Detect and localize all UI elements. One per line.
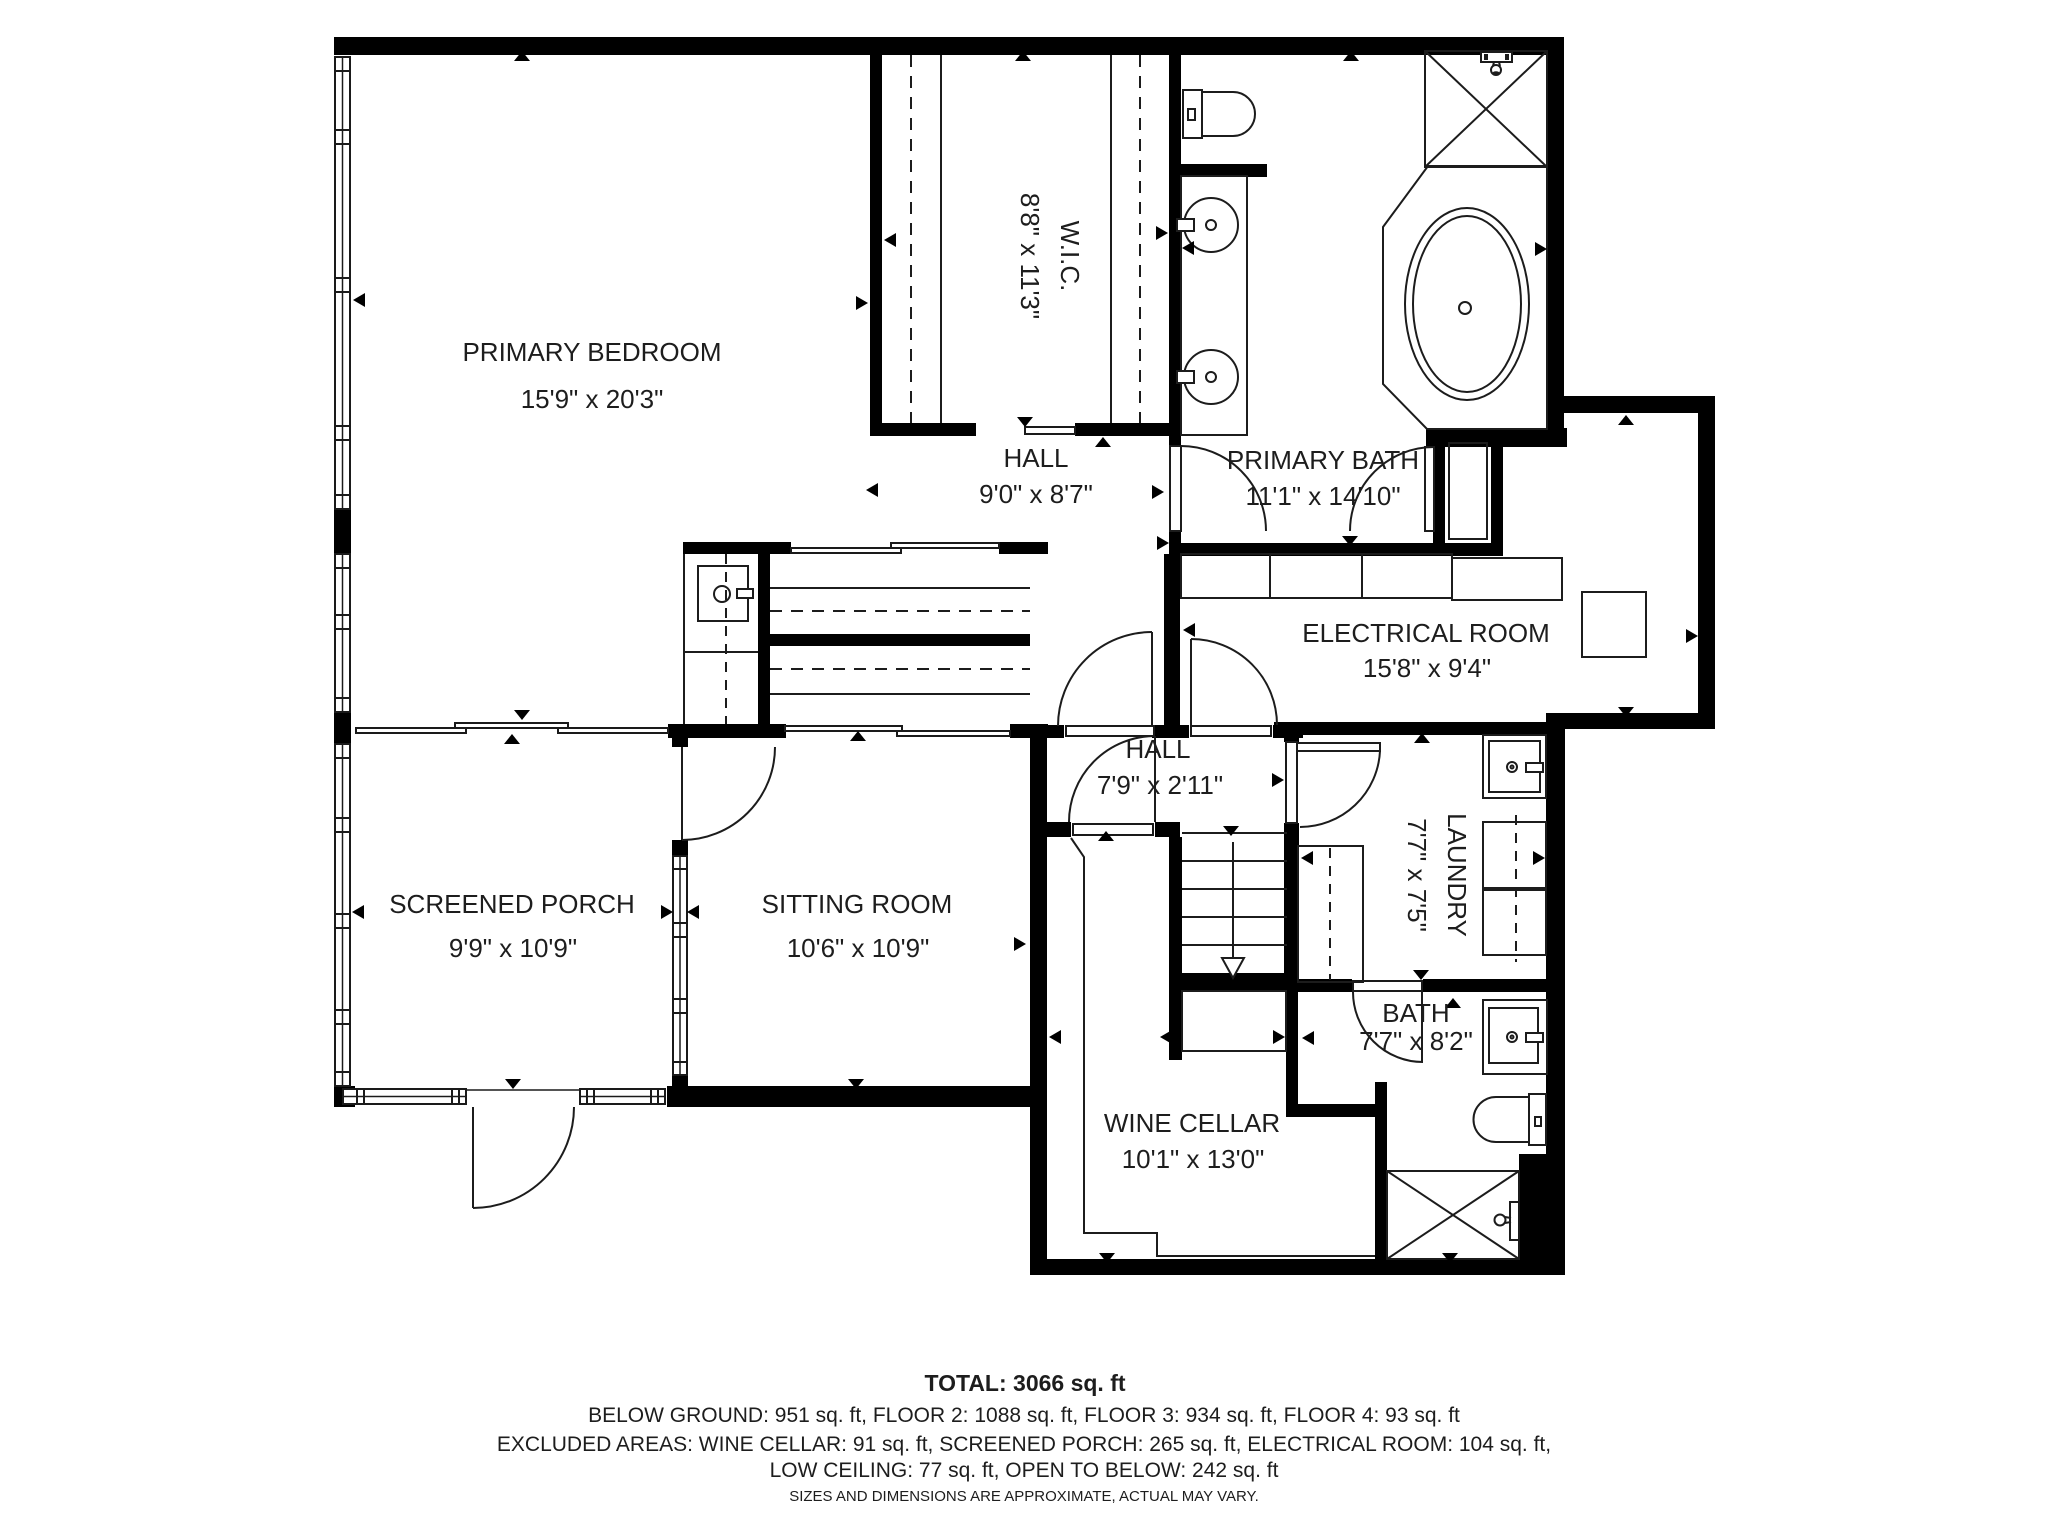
svg-text:SIZES AND DIMENSIONS ARE APPRO: SIZES AND DIMENSIONS ARE APPROXIMATE, AC… [789,1488,1259,1505]
svg-text:7'9" x 2'11": 7'9" x 2'11" [1097,770,1223,800]
svg-text:WINE CELLAR: WINE CELLAR [1104,1108,1280,1138]
svg-text:EXCLUDED AREAS: WINE CELLAR: 9: EXCLUDED AREAS: WINE CELLAR: 91 sq. ft, … [497,1433,1551,1456]
svg-text:W.I.C.: W.I.C. [1055,221,1085,292]
svg-text:SITTING ROOM: SITTING ROOM [762,889,953,919]
svg-text:HALL: HALL [1003,443,1068,473]
svg-text:10'1" x 13'0": 10'1" x 13'0" [1122,1144,1265,1174]
svg-text:TOTAL: 3066 sq. ft: TOTAL: 3066 sq. ft [924,1370,1125,1396]
svg-text:15'9" x 20'3": 15'9" x 20'3" [521,384,664,414]
svg-text:BELOW GROUND: 951 sq. ft, FLOO: BELOW GROUND: 951 sq. ft, FLOOR 2: 1088 … [588,1404,1460,1427]
svg-text:HALL: HALL [1125,734,1190,764]
svg-text:15'8" x 9'4": 15'8" x 9'4" [1363,653,1491,683]
svg-text:9'9" x 10'9": 9'9" x 10'9" [449,933,577,963]
svg-text:PRIMARY BEDROOM: PRIMARY BEDROOM [462,337,721,367]
svg-text:7'7" x 7'5": 7'7" x 7'5" [1402,818,1432,932]
svg-text:9'0" x 8'7": 9'0" x 8'7" [979,479,1093,509]
svg-text:ELECTRICAL ROOM: ELECTRICAL ROOM [1302,618,1550,648]
svg-text:BATH: BATH [1382,998,1449,1028]
svg-text:PRIMARY BATH: PRIMARY BATH [1227,445,1419,475]
svg-text:11'1" x 14'10": 11'1" x 14'10" [1245,481,1400,511]
svg-text:LOW CEILING: 77 sq. ft, OPEN T: LOW CEILING: 77 sq. ft, OPEN TO BELOW: 2… [770,1459,1279,1482]
svg-text:8'8" x 11'3": 8'8" x 11'3" [1015,193,1045,319]
svg-text:7'7" x 8'2": 7'7" x 8'2" [1359,1026,1473,1056]
svg-text:10'6" x 10'9": 10'6" x 10'9" [787,933,930,963]
svg-text:LAUNDRY: LAUNDRY [1442,813,1472,937]
svg-text:SCREENED PORCH: SCREENED PORCH [389,889,635,919]
